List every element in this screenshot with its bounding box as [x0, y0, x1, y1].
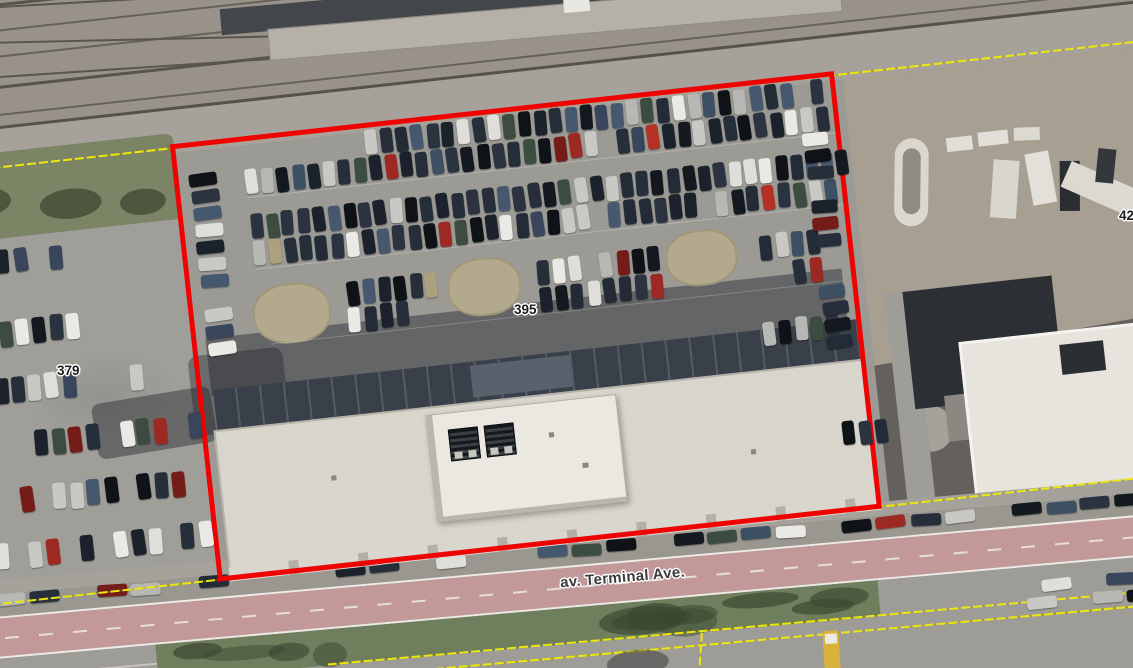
parked-car — [794, 316, 808, 341]
parked-car — [129, 364, 144, 391]
parked-car — [606, 538, 637, 552]
parked-car — [538, 137, 552, 163]
parked-car — [501, 113, 515, 139]
parcel-number-395: 395 — [514, 302, 537, 317]
parked-car — [364, 306, 378, 332]
parked-car — [594, 104, 609, 130]
parked-car — [280, 209, 294, 235]
tree-shadow — [38, 185, 103, 222]
map-scene — [0, 0, 1133, 668]
parked-car — [579, 104, 593, 130]
parked-car — [1106, 572, 1133, 585]
parked-car — [52, 482, 67, 509]
parked-car — [154, 472, 169, 499]
parked-car — [195, 222, 224, 237]
parked-car — [667, 167, 681, 193]
parked-car — [104, 476, 120, 503]
parked-car — [516, 213, 530, 239]
parked-car — [49, 314, 64, 341]
parked-car — [14, 318, 30, 345]
parcel-number-379: 379 — [57, 363, 80, 378]
parked-car — [410, 273, 424, 299]
parked-car — [27, 374, 42, 401]
parked-car — [378, 276, 392, 302]
parked-car — [630, 126, 644, 152]
parked-car — [584, 131, 598, 157]
parked-car — [426, 123, 440, 149]
parked-car — [0, 378, 10, 405]
parked-car — [808, 165, 835, 180]
parked-car — [533, 110, 547, 136]
aerial-map[interactable]: 379 395 42 av. Terminal Ave. — [0, 0, 1133, 668]
parked-car — [572, 544, 603, 558]
parked-car — [45, 538, 61, 565]
parked-car — [477, 144, 491, 170]
parked-car — [362, 278, 376, 304]
parked-car — [297, 208, 311, 234]
equipment — [1095, 148, 1116, 184]
parked-car — [348, 306, 362, 332]
parked-car — [414, 152, 429, 178]
parked-car — [740, 525, 771, 540]
parked-car — [379, 127, 394, 153]
parked-car — [331, 233, 345, 259]
parked-car — [631, 248, 645, 274]
parked-car — [354, 157, 368, 183]
parked-car — [547, 210, 561, 236]
parked-car — [684, 192, 698, 218]
parked-car — [733, 90, 747, 116]
parked-car — [1092, 590, 1123, 604]
parked-car — [517, 111, 531, 137]
parked-car — [1126, 588, 1133, 603]
parked-car — [570, 283, 584, 309]
parked-car — [438, 221, 453, 247]
platform-hut — [561, 0, 590, 13]
bus-roof — [825, 633, 838, 644]
parked-car — [200, 273, 229, 288]
storage-tank — [894, 138, 929, 226]
parked-car — [30, 316, 46, 343]
median-tree — [721, 589, 799, 611]
parked-car — [809, 316, 824, 341]
parked-car — [322, 161, 336, 187]
parked-car — [343, 202, 358, 228]
parked-car — [691, 119, 706, 145]
parked-car — [398, 151, 413, 177]
parked-car — [618, 276, 632, 302]
parked-car — [911, 513, 942, 527]
tree-shadow — [119, 186, 168, 217]
rail-switch-track — [0, 35, 302, 48]
parked-car — [395, 301, 409, 327]
parked-car — [536, 260, 550, 286]
parked-car — [587, 280, 601, 306]
parked-car — [292, 164, 306, 190]
parked-car — [635, 170, 649, 196]
parked-car — [496, 186, 510, 212]
parked-car — [758, 235, 772, 261]
truck — [990, 159, 1020, 219]
parked-car — [252, 240, 266, 266]
parked-car — [408, 225, 423, 251]
parked-car — [784, 109, 798, 135]
parked-car — [197, 257, 226, 272]
trailer — [946, 135, 973, 152]
parked-car — [440, 121, 454, 147]
parked-car — [616, 250, 630, 276]
parked-car — [678, 121, 692, 147]
parked-car — [454, 219, 468, 245]
parked-car — [611, 103, 625, 129]
parked-car — [1046, 500, 1077, 515]
parked-car — [809, 257, 823, 283]
parked-car — [268, 238, 283, 264]
parked-car — [1113, 492, 1133, 506]
parked-car — [777, 182, 791, 208]
parked-car — [148, 528, 163, 555]
school-bus — [823, 630, 841, 668]
parked-car — [405, 197, 419, 223]
parked-car — [85, 478, 100, 505]
median-tree — [791, 596, 855, 617]
parked-car — [811, 199, 838, 214]
parcel-number-42: 42 — [1119, 208, 1133, 223]
parked-car — [607, 202, 621, 228]
parked-car — [364, 129, 378, 155]
parked-car — [815, 232, 842, 247]
east-building-hvac — [1059, 340, 1106, 375]
parked-car — [70, 482, 85, 509]
parked-car — [12, 246, 28, 272]
parked-car — [552, 258, 566, 284]
parked-car — [260, 168, 274, 194]
parked-car — [801, 131, 828, 147]
parked-car — [800, 107, 814, 133]
parked-car — [702, 91, 716, 117]
parked-car — [389, 198, 403, 224]
parked-car — [34, 429, 49, 456]
parked-car — [634, 274, 648, 300]
parked-car — [171, 471, 187, 498]
parked-car — [51, 428, 67, 455]
parked-car — [379, 302, 394, 328]
parked-car — [790, 231, 804, 257]
parked-car — [717, 90, 732, 116]
parked-car — [564, 107, 578, 133]
tree-shadow — [0, 185, 12, 219]
parked-car — [0, 543, 10, 570]
parked-car — [615, 128, 630, 154]
parked-car — [606, 176, 620, 202]
parked-car — [153, 418, 168, 445]
tank-interior — [902, 148, 921, 214]
parked-car — [834, 149, 849, 175]
parked-car — [392, 224, 406, 250]
parked-car — [451, 192, 466, 218]
parked-car — [758, 158, 772, 184]
parked-car — [187, 412, 202, 439]
parked-car — [384, 154, 399, 180]
parked-car — [790, 154, 804, 180]
parked-car — [775, 155, 789, 181]
parked-car — [337, 159, 351, 185]
parked-car — [650, 273, 664, 299]
parked-car — [180, 522, 195, 549]
parked-car — [728, 161, 742, 187]
parked-car — [778, 319, 792, 344]
parked-car — [841, 420, 856, 445]
parked-car — [10, 376, 25, 403]
parked-car — [553, 136, 568, 162]
parked-car — [619, 172, 634, 198]
parked-car — [48, 245, 63, 270]
parked-car — [507, 142, 521, 168]
parked-car — [456, 119, 471, 145]
trailer — [1014, 127, 1041, 141]
parked-car — [775, 525, 806, 539]
